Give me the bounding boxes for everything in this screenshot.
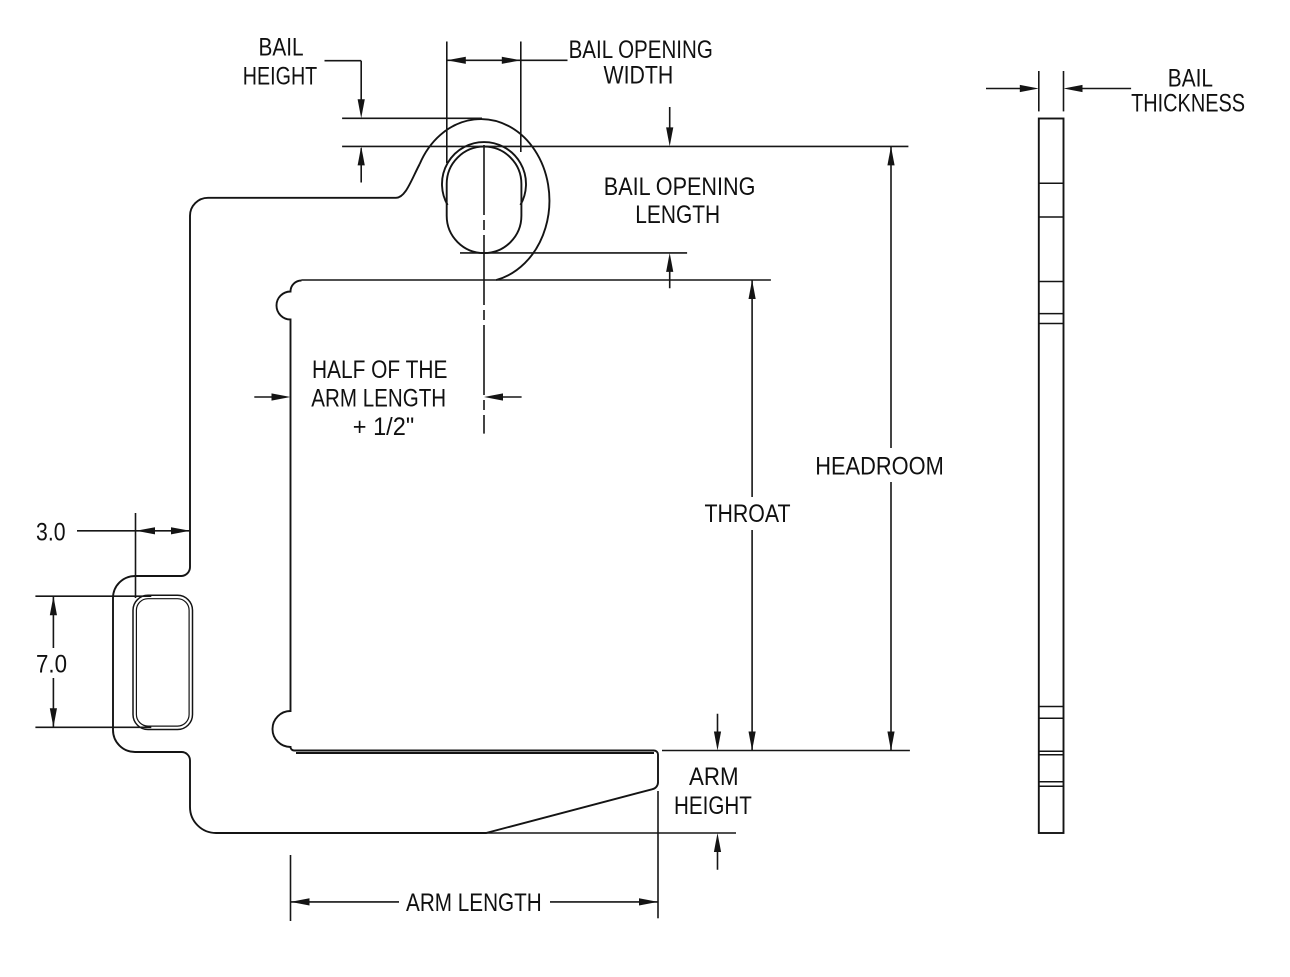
svg-text:WIDTH: WIDTH [604,61,674,89]
svg-text:ARM LENGTH: ARM LENGTH [311,385,446,413]
svg-text:7.0: 7.0 [36,650,67,678]
svg-text:LENGTH: LENGTH [635,201,720,229]
svg-text:THICKNESS: THICKNESS [1131,90,1245,118]
svg-text:THROAT: THROAT [704,500,790,528]
svg-text:BAIL OPENING: BAIL OPENING [569,36,713,64]
svg-text:HEIGHT: HEIGHT [674,792,752,820]
svg-text:HALF OF THE: HALF OF THE [312,356,448,384]
svg-text:BAIL OPENING: BAIL OPENING [604,173,756,201]
svg-text:BAIL: BAIL [1168,65,1213,93]
svg-text:3.0: 3.0 [36,519,66,547]
svg-text:ARM: ARM [689,763,739,791]
svg-text:+ 1/2": + 1/2" [353,413,414,441]
svg-text:BAIL: BAIL [258,34,303,62]
svg-text:ARM LENGTH: ARM LENGTH [406,889,542,917]
svg-text:HEADROOM: HEADROOM [815,452,944,480]
svg-text:HEIGHT: HEIGHT [243,63,317,91]
